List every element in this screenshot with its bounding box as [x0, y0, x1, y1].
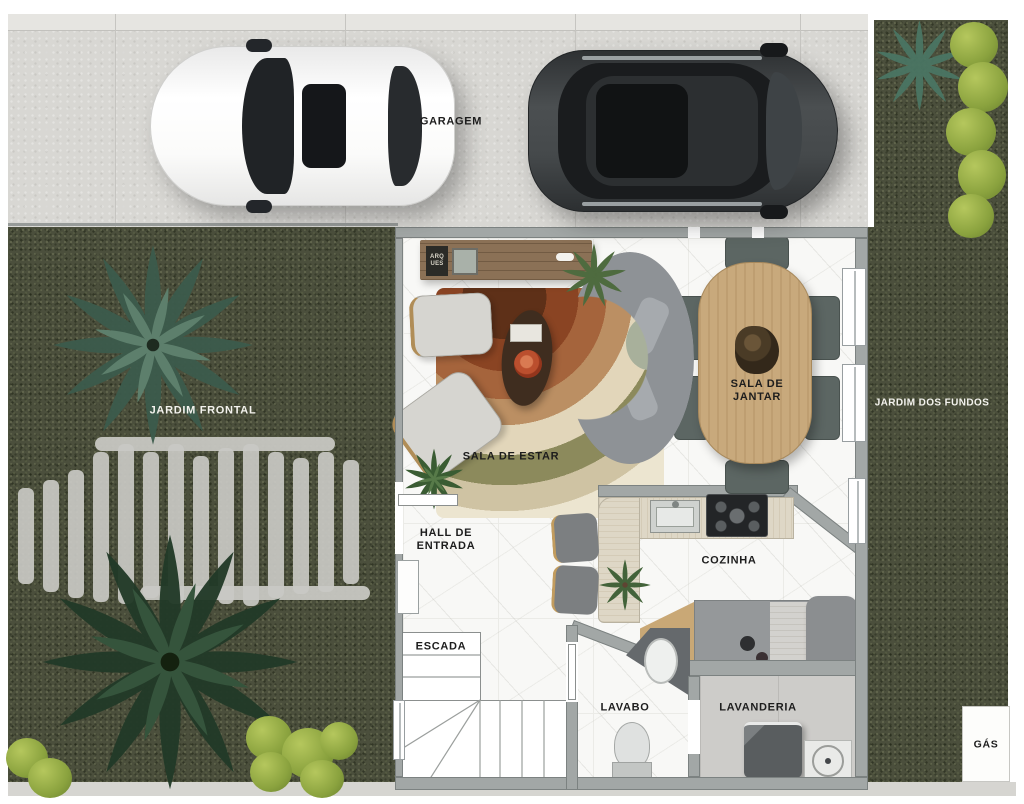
- deck-slat: [318, 452, 334, 592]
- shrub: [958, 62, 1008, 112]
- kitchen-counter-end-module: [806, 596, 858, 664]
- counter-bowl: [740, 636, 755, 651]
- shrub: [950, 22, 998, 68]
- window: [848, 478, 866, 544]
- laundry-sink-drain: [825, 758, 831, 764]
- laundry-sink: [804, 740, 852, 780]
- entry-door-opening: [395, 482, 403, 554]
- white-car-mirror: [246, 39, 272, 52]
- coffee-table-book: [510, 324, 542, 342]
- deck-slat: [343, 460, 359, 584]
- dark-car-sunroof: [596, 84, 688, 178]
- jardim-dos-fundos-label: JARDIM DOS FUNDOS: [875, 397, 990, 410]
- sink-basin: [656, 507, 694, 527]
- laundry-door-opening: [688, 700, 700, 754]
- lavabo-label: LAVABO: [600, 702, 649, 715]
- plaque-line2: UES: [426, 261, 448, 268]
- gas-label: GÁS: [974, 739, 999, 752]
- bar-stool: [551, 565, 599, 615]
- hall-cabinet: [397, 560, 419, 614]
- hall-line1: HALL DE: [417, 527, 476, 540]
- wall-gap: [688, 227, 700, 238]
- wall-top: [395, 227, 868, 238]
- credenza-photo-frame: [452, 248, 478, 275]
- shrub: [250, 752, 292, 792]
- kitchen-plant: [598, 558, 652, 612]
- dining-chair: [725, 460, 789, 494]
- sala-de-jantar-label: SALA DE JANTAR: [731, 378, 784, 404]
- dark-car-roof-rail: [582, 56, 762, 60]
- garden-fence-line: [8, 223, 398, 226]
- garagem-label: GARAGEM: [420, 116, 482, 129]
- white-car: [150, 46, 455, 206]
- wall-gap: [752, 227, 764, 238]
- shrub: [946, 108, 996, 156]
- hall-line2: ENTRADA: [417, 540, 476, 553]
- lavanderia-label: LAVANDERIA: [719, 702, 796, 715]
- white-car-mirror: [246, 200, 272, 213]
- escada-label: ESCADA: [416, 641, 467, 654]
- pavement-seam: [115, 14, 116, 227]
- palm-tree: [48, 240, 258, 450]
- pavement-seam: [8, 30, 868, 31]
- washing-machine: [744, 722, 802, 778]
- cooktop: [706, 494, 768, 537]
- sofa-cushion: [615, 365, 660, 424]
- bar-stool: [550, 512, 599, 563]
- shrub: [948, 194, 994, 238]
- armchair: [408, 292, 493, 358]
- table-centerpiece: [735, 326, 779, 374]
- staircase: [400, 632, 568, 785]
- dark-car: [528, 50, 838, 212]
- window: [842, 268, 866, 346]
- sofa-cushion: [622, 294, 672, 357]
- lavabo-door-leaf: [568, 644, 576, 700]
- sala-de-jantar-line1: SALA DE: [731, 378, 784, 391]
- plaque-line1: ARQ: [426, 254, 448, 261]
- toilet-tank: [612, 762, 652, 778]
- floor-plan-canvas: ARQ UES: [0, 0, 1024, 804]
- jardim-frontal-label: JARDIM FRONTAL: [150, 405, 257, 418]
- shrub: [320, 722, 358, 760]
- white-car-windshield: [242, 58, 294, 194]
- shrub: [300, 760, 344, 798]
- kitchen-sink: [650, 500, 700, 533]
- credenza-plaque: ARQ UES: [426, 246, 448, 276]
- coffee-table-tray: [514, 350, 542, 378]
- shrub: [958, 150, 1006, 200]
- back-garden: [868, 227, 1008, 782]
- sidewalk-strip: [8, 14, 868, 30]
- dark-car-mirror: [760, 43, 788, 57]
- window: [842, 364, 866, 442]
- cozinha-label: COZINHA: [701, 555, 756, 568]
- sink-faucet: [672, 501, 679, 508]
- lavabo-sink: [644, 638, 678, 684]
- potted-plant: [560, 242, 628, 310]
- entry-door-leaf: [398, 494, 458, 506]
- dark-car-roof-rail: [582, 202, 762, 206]
- sala-de-jantar-line2: JANTAR: [731, 391, 784, 404]
- hall-de-entrada-label: HALL DE ENTRADA: [417, 527, 476, 553]
- white-car-sunroof: [302, 84, 346, 168]
- sala-de-estar-label: SALA DE ESTAR: [463, 451, 560, 464]
- wall-bottom: [395, 777, 868, 790]
- dark-car-mirror: [760, 205, 788, 219]
- window: [393, 700, 405, 760]
- shrub: [28, 758, 72, 798]
